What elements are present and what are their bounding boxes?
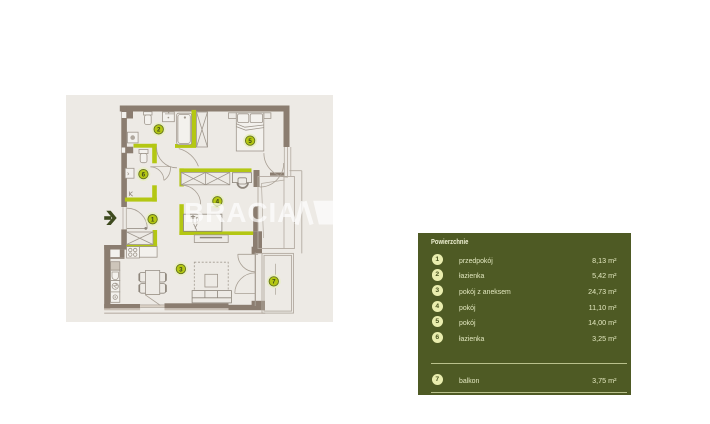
svg-text:3: 3 — [179, 266, 183, 273]
svg-text:5: 5 — [248, 138, 252, 145]
svg-text:2: 2 — [157, 127, 161, 134]
svg-text:1: 1 — [151, 217, 155, 224]
svg-text:BRACIA: BRACIA — [184, 197, 298, 228]
svg-text:6: 6 — [142, 171, 146, 178]
svg-text:7: 7 — [272, 279, 276, 286]
